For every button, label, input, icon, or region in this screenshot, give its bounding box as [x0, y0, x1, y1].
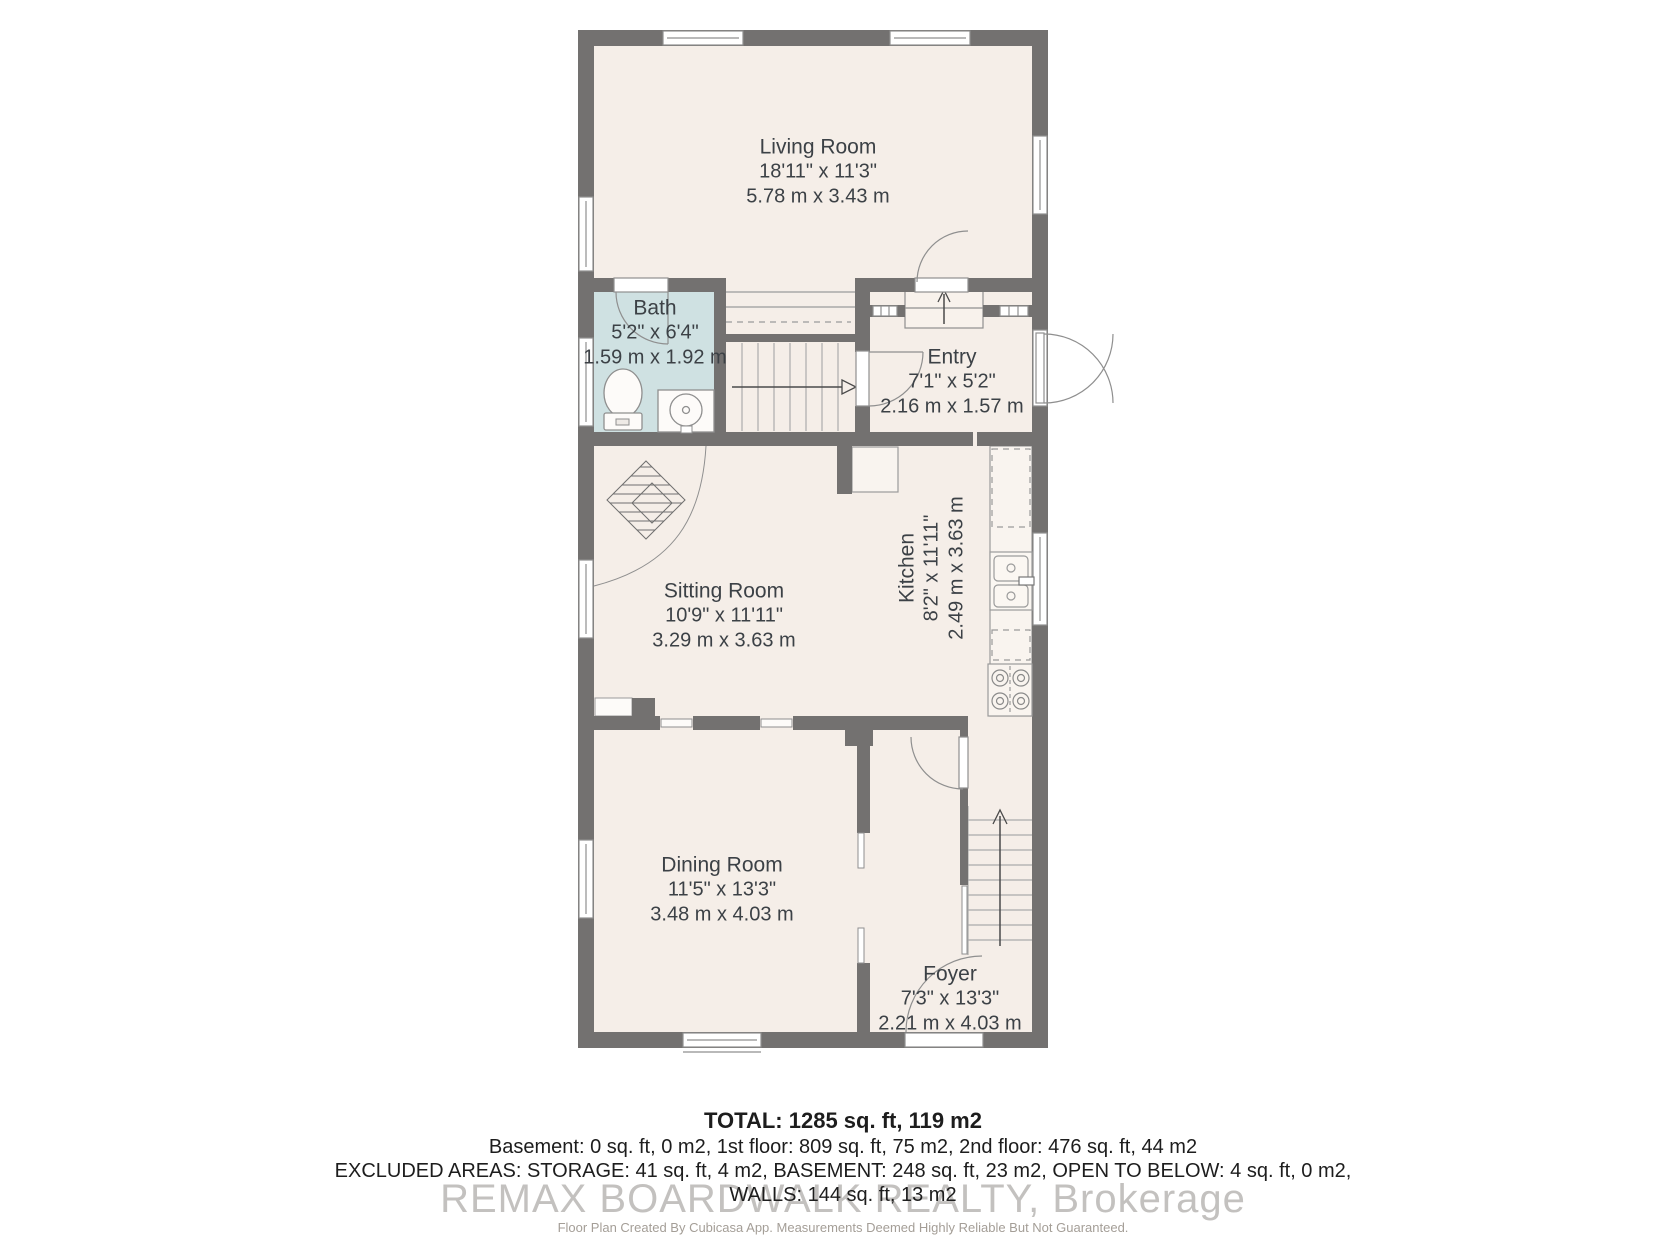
room-label-dining: Dining Room 11'5" x 13'3" 3.48 m x 4.03 … — [650, 853, 793, 928]
summary-excluded: EXCLUDED AREAS: STORAGE: 41 sq. ft, 4 m2… — [3, 1160, 1680, 1183]
sitting-alcove — [595, 698, 632, 716]
room-label-sitting: Sitting Room 10'9" x 11'11" 3.29 m x 3.6… — [652, 579, 795, 654]
room-label-living: Living Room 18'11" x 11'3" 5.78 m x 3.43… — [746, 135, 889, 210]
window — [579, 840, 593, 918]
footnote: Floor Plan Created By Cubicasa App. Meas… — [3, 1220, 1680, 1235]
window-small — [873, 306, 897, 316]
window — [579, 560, 593, 638]
summary-floors: Basement: 0 sq. ft, 0 m2, 1st floor: 809… — [3, 1136, 1680, 1159]
window — [890, 31, 970, 45]
toilet — [604, 369, 642, 430]
window — [579, 197, 593, 271]
window — [663, 31, 743, 45]
kitchen-fridge — [852, 447, 898, 492]
room-label-kitchen: Kitchen 8'2" x 11'11" 2.49 m x 3.63 m — [895, 496, 970, 639]
stove — [988, 664, 1032, 716]
summary-total: TOTAL: 1285 sq. ft, 119 m2 — [3, 1108, 1680, 1134]
kitchen-sink — [990, 552, 1034, 610]
window — [1033, 533, 1047, 625]
bath-sink — [658, 390, 714, 433]
window — [1033, 136, 1047, 214]
summary-walls: WALLS: 144 sq. ft, 13 m2 — [3, 1184, 1680, 1207]
room-label-foyer: Foyer 7'3" x 13'3" 2.21 m x 4.03 m — [878, 962, 1021, 1037]
room-label-bath: Bath 5'2" x 6'4" 1.59 m x 1.92 m — [583, 296, 726, 371]
front-door — [1033, 330, 1113, 406]
window-small — [1000, 306, 1028, 316]
room-label-entry: Entry 7'1" x 5'2" 2.16 m x 1.57 m — [880, 345, 1023, 420]
floorplan-page: Living Room 18'11" x 11'3" 5.78 m x 3.43… — [0, 0, 1680, 1260]
entry-landing-steps — [905, 288, 983, 328]
window — [683, 1033, 761, 1047]
